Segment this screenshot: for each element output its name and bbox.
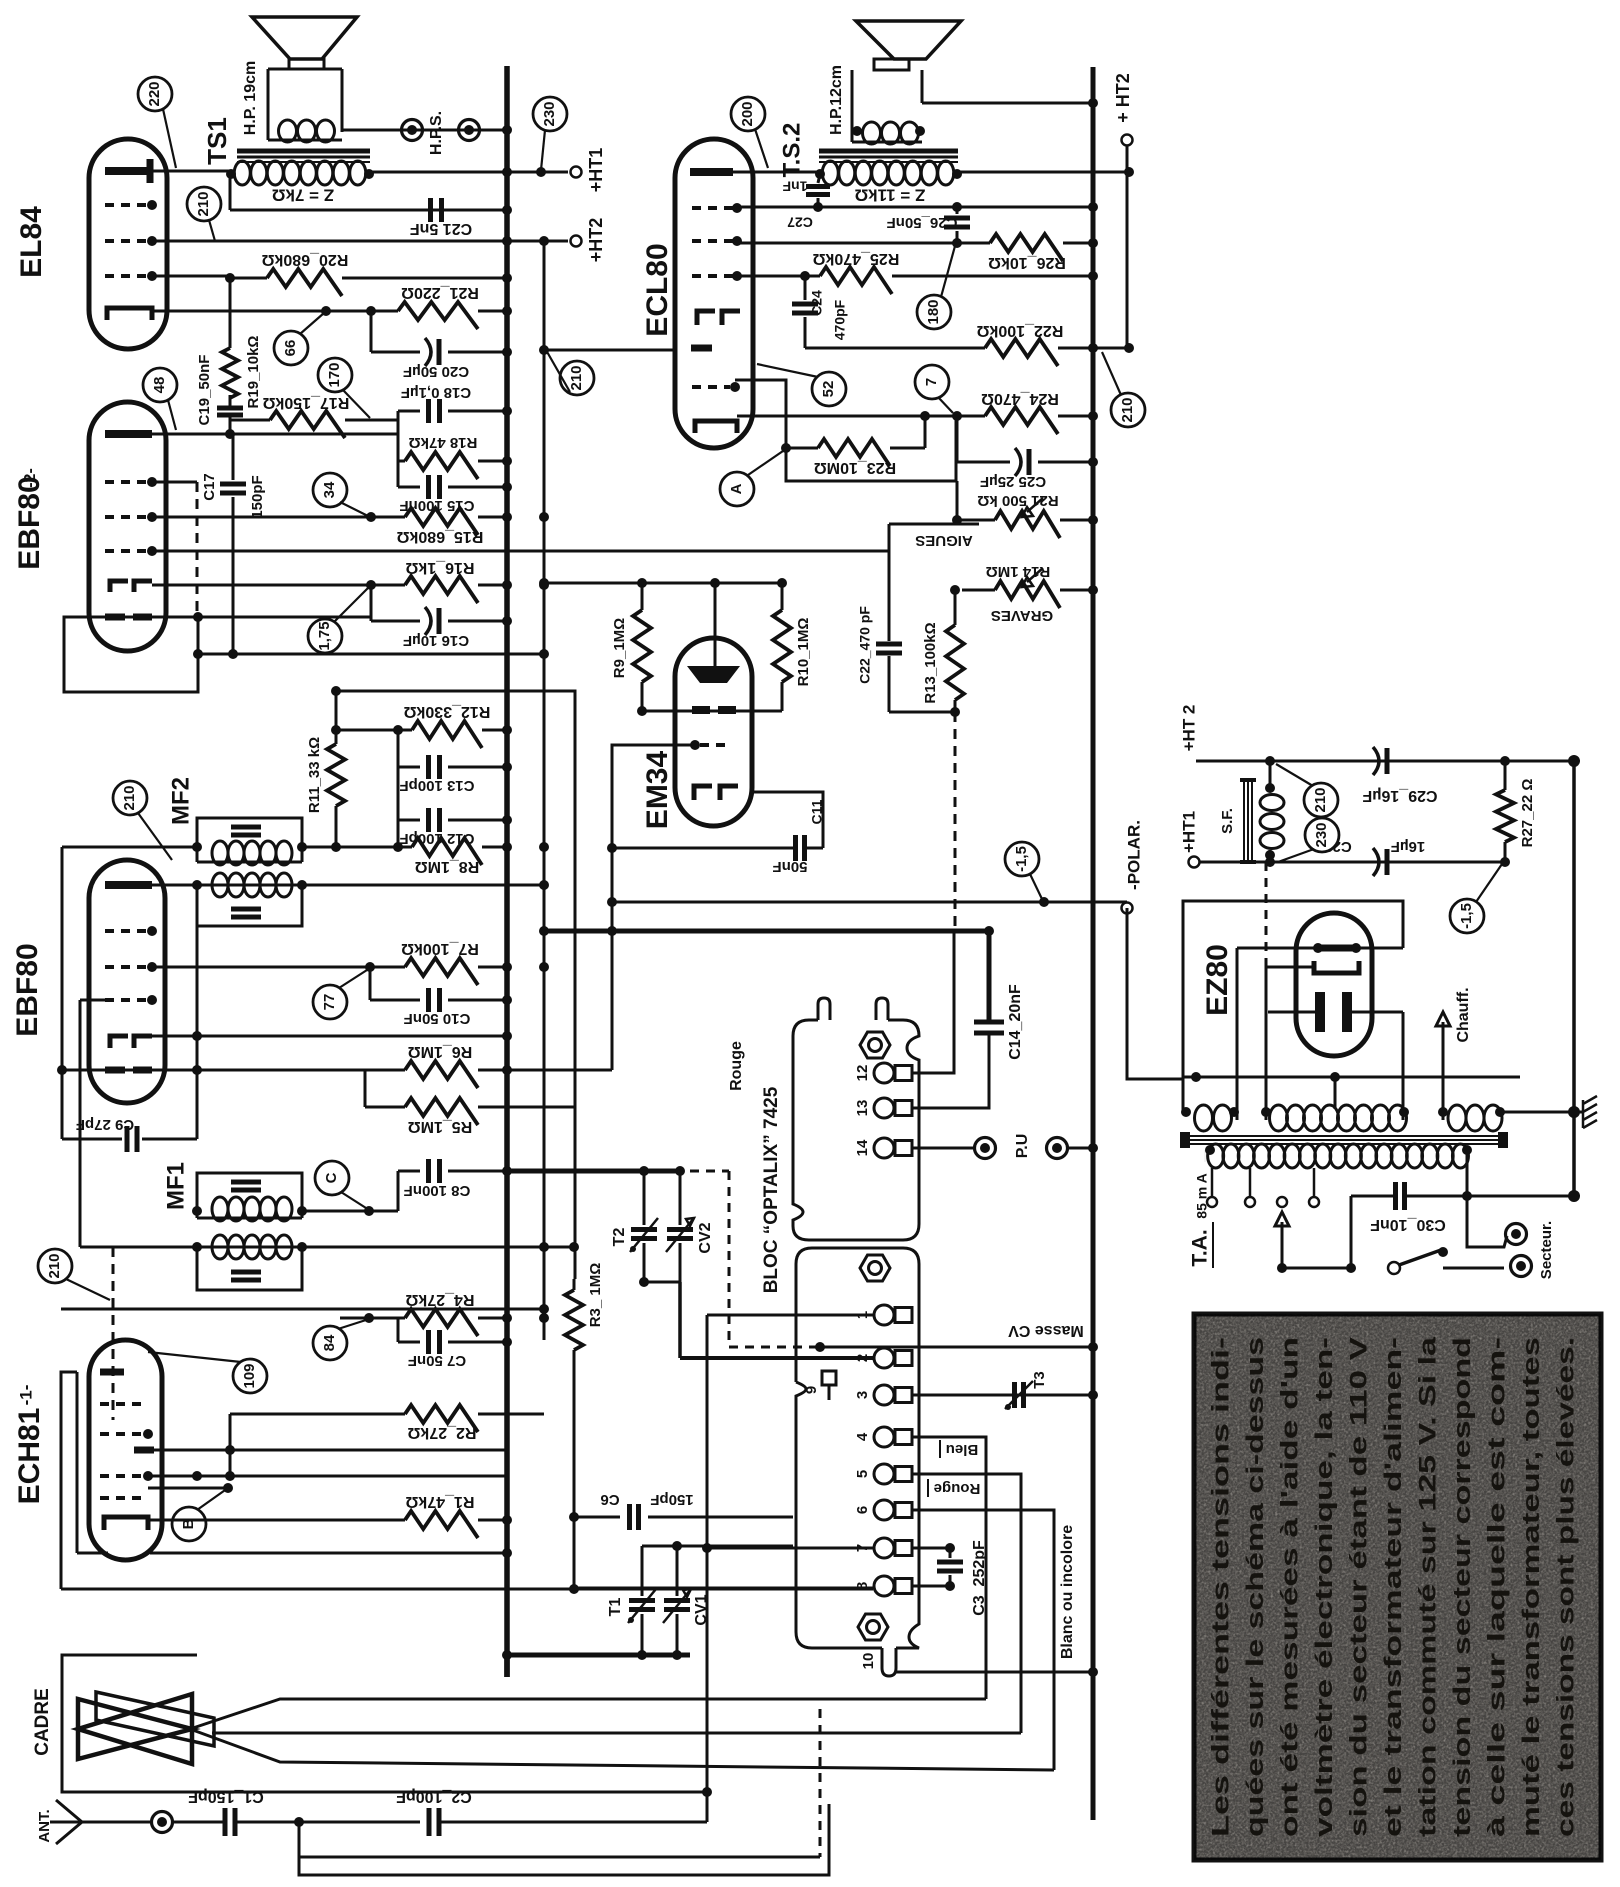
svg-text:210: 210 bbox=[1312, 787, 1329, 812]
svg-text:R2_27kΩ: R2_27kΩ bbox=[407, 1424, 476, 1441]
svg-text:quées sur le schéma ci-des: quées sur le schéma ci-dessus bbox=[1242, 1337, 1269, 1837]
svg-text:Secteur.: Secteur. bbox=[1538, 1221, 1555, 1279]
svg-text:C11: C11 bbox=[809, 799, 825, 824]
svg-text:R9_1MΩ: R9_1MΩ bbox=[611, 618, 628, 678]
svg-text:ces tensions sont plus élevées: ces tensions sont plus élevées. bbox=[1552, 1337, 1579, 1837]
svg-text:R15_680kΩ: R15_680kΩ bbox=[396, 528, 483, 545]
svg-text:C10 50nF: C10 50nF bbox=[404, 1010, 471, 1027]
svg-text:R12_330kΩ: R12_330kΩ bbox=[403, 703, 490, 720]
svg-text:T1: T1 bbox=[607, 1598, 624, 1617]
svg-text:210: 210 bbox=[195, 191, 212, 216]
svg-text:13: 13 bbox=[854, 1100, 871, 1117]
svg-text:R27_22 Ω: R27_22 Ω bbox=[1519, 779, 1536, 848]
svg-text:50nF: 50nF bbox=[772, 858, 807, 875]
svg-text:10: 10 bbox=[860, 1653, 877, 1670]
svg-text:EBF80: EBF80 bbox=[11, 943, 44, 1036]
svg-text:210: 210 bbox=[46, 1253, 63, 1278]
svg-text:T.A.: T.A. bbox=[1189, 1229, 1212, 1266]
svg-text:-1,5: -1,5 bbox=[1458, 903, 1475, 929]
svg-text:7: 7 bbox=[923, 378, 940, 386]
svg-text:R4_27kΩ: R4_27kΩ bbox=[405, 1291, 474, 1308]
svg-text:C9 27pF: C9 27pF bbox=[76, 1116, 134, 1133]
svg-text:C20 50µF: C20 50µF bbox=[403, 363, 469, 380]
svg-text:+HT1: +HT1 bbox=[1179, 811, 1198, 853]
svg-text:C3_252pF: C3_252pF bbox=[971, 1540, 988, 1616]
svg-text:Masse CV: Masse CV bbox=[1008, 1322, 1084, 1339]
svg-text:+ HT2: + HT2 bbox=[1113, 73, 1133, 123]
svg-text:16µF: 16µF bbox=[1391, 838, 1426, 855]
svg-text:ECH81: ECH81 bbox=[13, 1408, 46, 1505]
svg-text:C25 25µF: C25 25µF bbox=[980, 473, 1046, 490]
svg-text:C13 100pF: C13 100pF bbox=[399, 777, 474, 794]
svg-text:52: 52 bbox=[820, 381, 837, 398]
svg-text:-2-: -2- bbox=[22, 468, 39, 488]
svg-text:Bleu: Bleu bbox=[946, 1441, 979, 1458]
svg-text:R7_100kΩ: R7_100kΩ bbox=[401, 940, 479, 957]
svg-text:R18 47kΩ: R18 47kΩ bbox=[409, 434, 478, 451]
svg-text:R24_470Ω: R24_470Ω bbox=[981, 390, 1059, 407]
svg-text:sion du secteur étant de 110 V: sion du secteur étant de 110 V bbox=[1345, 1337, 1372, 1837]
svg-text:T.S.2: T.S.2 bbox=[778, 123, 805, 178]
svg-text:H.P. 19cm: H.P. 19cm bbox=[242, 61, 259, 135]
svg-text:R21 500 kΩ: R21 500 kΩ bbox=[977, 492, 1058, 509]
svg-text:C29_16µF: C29_16µF bbox=[1362, 787, 1437, 804]
svg-text:R25_470kΩ: R25_470kΩ bbox=[812, 250, 899, 267]
svg-text:R13_100kΩ: R13_100kΩ bbox=[922, 622, 939, 703]
svg-text:tation commuté sur 125 V. Si l: tation commuté sur 125 V. Si la bbox=[1414, 1336, 1441, 1837]
svg-text:2: 2 bbox=[854, 1354, 871, 1362]
svg-text:77: 77 bbox=[321, 994, 338, 1011]
svg-text:R22_100kΩ: R22_100kΩ bbox=[976, 322, 1063, 339]
svg-text:C24: C24 bbox=[809, 290, 825, 316]
svg-text:1nF: 1nF bbox=[782, 178, 807, 194]
svg-text:ont été mesurées à l'aide d'un: ont été mesurées à l'aide d'un bbox=[1276, 1337, 1303, 1837]
svg-text:ANT.: ANT. bbox=[36, 1809, 53, 1842]
svg-text:-POLAR.: -POLAR. bbox=[1124, 820, 1143, 890]
svg-text:R10_1MΩ: R10_1MΩ bbox=[795, 618, 812, 687]
svg-text:C6: C6 bbox=[600, 1491, 619, 1508]
svg-text:34: 34 bbox=[321, 481, 338, 498]
svg-text:C17: C17 bbox=[201, 473, 218, 501]
svg-text:C7 50nF: C7 50nF bbox=[408, 1352, 466, 1369]
svg-text:200: 200 bbox=[739, 101, 756, 126]
svg-text:tension du secteur correspo: tension du secteur correspond bbox=[1449, 1337, 1476, 1837]
svg-text:R19_10kΩ: R19_10kΩ bbox=[245, 336, 262, 409]
svg-text:TS1: TS1 bbox=[202, 117, 232, 165]
svg-text:BLOC “OPTALIX” 7425: BLOC “OPTALIX” 7425 bbox=[761, 1086, 782, 1293]
svg-text:4: 4 bbox=[854, 1432, 871, 1441]
svg-text:C27: C27 bbox=[787, 214, 813, 230]
svg-text:H.P.S.: H.P.S. bbox=[428, 111, 445, 155]
svg-text:C22_470 pF: C22_470 pF bbox=[857, 606, 873, 684]
svg-text:R3_ 1MΩ: R3_ 1MΩ bbox=[587, 1263, 604, 1328]
svg-text:220: 220 bbox=[146, 81, 163, 106]
svg-text:AIGUES: AIGUES bbox=[915, 532, 973, 549]
svg-text:R11_33 kΩ: R11_33 kΩ bbox=[306, 737, 323, 813]
svg-text:109: 109 bbox=[241, 1363, 258, 1388]
svg-text:3: 3 bbox=[854, 1391, 871, 1399]
svg-text:R23_10MΩ: R23_10MΩ bbox=[814, 459, 896, 476]
svg-text:R16_1kΩ: R16_1kΩ bbox=[405, 559, 474, 576]
svg-text:C16 10µF: C16 10µF bbox=[403, 632, 469, 649]
svg-text:R1_47kΩ: R1_47kΩ bbox=[405, 1493, 474, 1510]
svg-text:EL84: EL84 bbox=[15, 206, 48, 278]
svg-text:C14_20nF: C14_20nF bbox=[1007, 984, 1024, 1060]
svg-text:voltmètre électronique, la: voltmètre électronique, la ten- bbox=[1311, 1337, 1338, 1837]
svg-text:P.U: P.U bbox=[1014, 1134, 1031, 1159]
svg-text:Rouge: Rouge bbox=[934, 1480, 981, 1497]
svg-text:14: 14 bbox=[854, 1139, 871, 1156]
svg-text:à celle sur laquelle est: à celle sur laquelle est com- bbox=[1483, 1337, 1510, 1837]
svg-text:+HT 2: +HT 2 bbox=[1179, 705, 1198, 752]
svg-text:R6_1MΩ: R6_1MΩ bbox=[408, 1043, 473, 1060]
svg-text:CADRE: CADRE bbox=[32, 1688, 53, 1756]
svg-text:Blanc ou incolore: Blanc ou incolore bbox=[1059, 1525, 1076, 1659]
svg-text:48: 48 bbox=[151, 377, 168, 394]
svg-text:6: 6 bbox=[854, 1506, 871, 1514]
svg-text:R17_150kΩ: R17_150kΩ bbox=[262, 394, 349, 411]
svg-text:5: 5 bbox=[854, 1470, 871, 1478]
svg-text:R20_680kΩ: R20_680kΩ bbox=[261, 251, 348, 268]
svg-text:C30_10nF: C30_10nF bbox=[1370, 1216, 1446, 1233]
svg-text:Z = 11kΩ: Z = 11kΩ bbox=[855, 186, 926, 205]
svg-text:C2_100pF: C2_100pF bbox=[396, 1788, 472, 1805]
svg-text:Rouge: Rouge bbox=[728, 1041, 745, 1091]
svg-text:84: 84 bbox=[321, 1334, 338, 1351]
svg-text:EBF80: EBF80 bbox=[13, 476, 46, 569]
svg-text:-1-: -1- bbox=[16, 1385, 35, 1406]
svg-text:T2: T2 bbox=[611, 1228, 628, 1247]
svg-text:S.F.: S.F. bbox=[1219, 808, 1236, 834]
svg-text:C19_50nF: C19_50nF bbox=[196, 355, 213, 426]
svg-text:EZ80: EZ80 bbox=[1201, 944, 1234, 1016]
svg-text:R26_10kΩ: R26_10kΩ bbox=[988, 254, 1066, 271]
svg-text:T3: T3 bbox=[1031, 1371, 1048, 1389]
svg-text:R14 1MΩ: R14 1MΩ bbox=[986, 563, 1051, 580]
svg-text:C: C bbox=[323, 1172, 340, 1183]
svg-text:C21 5nF: C21 5nF bbox=[410, 220, 472, 237]
svg-text:ECL80: ECL80 bbox=[641, 243, 674, 336]
svg-text:210: 210 bbox=[121, 785, 138, 810]
svg-text:150pF: 150pF bbox=[650, 1491, 693, 1508]
svg-text:R8_1MΩ: R8_1MΩ bbox=[415, 858, 480, 875]
svg-text:85 m A: 85 m A bbox=[1194, 1173, 1210, 1218]
svg-text:470pF: 470pF bbox=[832, 299, 848, 340]
svg-text:150pF: 150pF bbox=[249, 475, 266, 518]
svg-text:12: 12 bbox=[854, 1065, 871, 1082]
svg-text:Z = 7kΩ: Z = 7kΩ bbox=[272, 186, 334, 205]
svg-text:MF2: MF2 bbox=[167, 777, 194, 825]
svg-text:230: 230 bbox=[541, 101, 558, 126]
svg-text:210: 210 bbox=[568, 365, 585, 390]
svg-text:CV2: CV2 bbox=[697, 1222, 714, 1253]
svg-text:muté le transformateur, tou: muté le transformateur, toutes bbox=[1518, 1337, 1545, 1837]
svg-text:C26_50nF: C26_50nF bbox=[887, 214, 958, 231]
svg-text:+HT1: +HT1 bbox=[586, 148, 606, 193]
svg-text:230: 230 bbox=[1313, 822, 1330, 847]
svg-text:66: 66 bbox=[282, 340, 299, 357]
svg-text:-1,5: -1,5 bbox=[1013, 846, 1030, 872]
svg-text:C18 0,1µF: C18 0,1µF bbox=[401, 384, 471, 401]
svg-text:Chauff.: Chauff. bbox=[1455, 987, 1472, 1042]
svg-text:C8 100nF: C8 100nF bbox=[404, 1182, 471, 1199]
svg-text:EM34: EM34 bbox=[641, 751, 674, 830]
svg-text:et le transformateur d'alim: et le transformateur d'alimen- bbox=[1380, 1337, 1407, 1837]
svg-text:H.P.12cm: H.P.12cm bbox=[828, 65, 845, 135]
svg-text:C1_150pF: C1_150pF bbox=[188, 1788, 264, 1805]
svg-text:MF1: MF1 bbox=[162, 1162, 189, 1210]
svg-text:Les différentes tensions in: Les différentes tensions indi- bbox=[1207, 1337, 1234, 1837]
svg-text:A: A bbox=[728, 483, 745, 494]
svg-text:170: 170 bbox=[326, 362, 343, 387]
svg-text:210: 210 bbox=[1119, 397, 1136, 422]
svg-text:+HT2: +HT2 bbox=[586, 218, 606, 263]
svg-text:180: 180 bbox=[925, 299, 942, 324]
svg-text:1,75: 1,75 bbox=[316, 621, 333, 650]
svg-text:9: 9 bbox=[803, 1386, 820, 1394]
svg-text:GRAVES: GRAVES bbox=[991, 607, 1053, 624]
svg-text:R5_1MΩ: R5_1MΩ bbox=[408, 1118, 473, 1135]
svg-text:R21_220Ω: R21_220Ω bbox=[401, 284, 479, 301]
